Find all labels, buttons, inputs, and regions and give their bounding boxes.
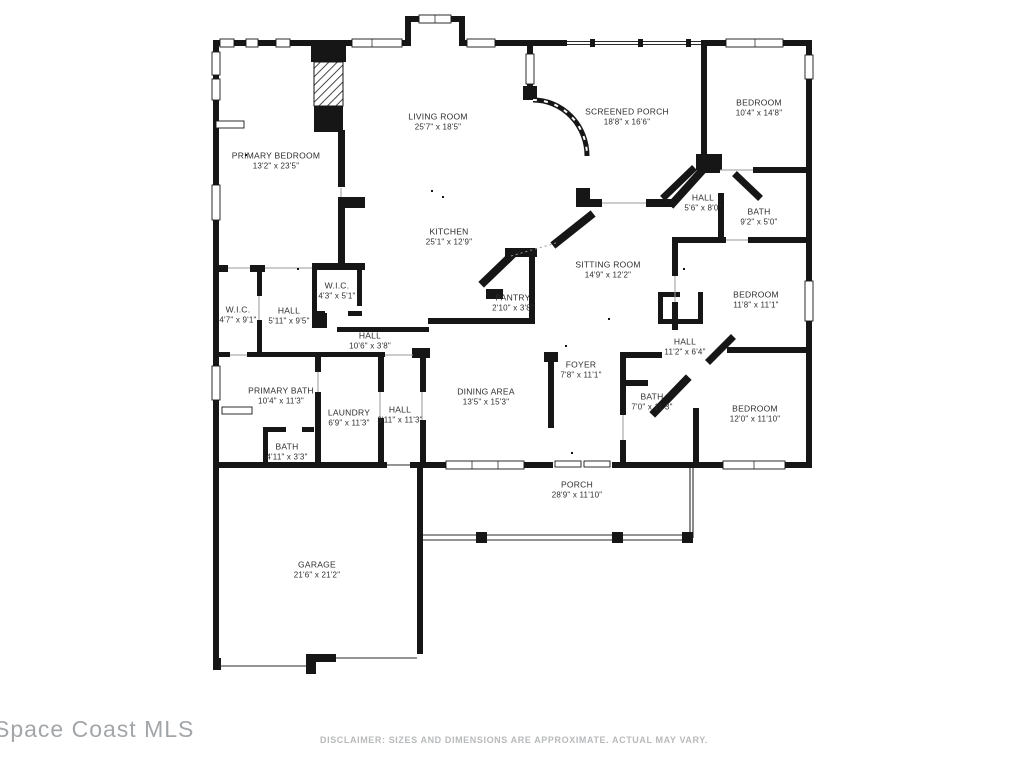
room-dims: 10'4" x 11'3": [248, 396, 314, 406]
room-dims: 13'2" x 23'5": [232, 161, 320, 171]
room-name: HALL: [389, 404, 411, 414]
room-dims: 7'8" x 11'1": [560, 370, 601, 380]
room-label-wic-1: W.I.C.4'7" x 9'1": [219, 304, 256, 325]
room-label-hall-laundry: HALL3'11" x 11'3": [377, 404, 422, 425]
room-name: KITCHEN: [429, 226, 468, 236]
room-label-bedroom-1: BEDROOM10'4" x 14'8": [736, 97, 782, 118]
room-name: BATH: [640, 391, 663, 401]
room-dims: 4'7" x 9'1": [219, 315, 256, 325]
room-dims: 11'2" x 6'4": [664, 347, 705, 357]
room-label-hall-ne: HALL5'6" x 8'0": [684, 192, 721, 213]
room-label-laundry: LAUNDRY6'9" x 11'3": [328, 407, 370, 428]
room-label-porch: PORCH28'9" x 11'10": [552, 479, 603, 500]
room-dims: 2'10" x 3'8": [492, 303, 534, 313]
room-dims: 28'9" x 11'10": [552, 490, 603, 500]
room-dims: 12'0" x 11'10": [730, 414, 781, 424]
room-label-kitchen: KITCHEN25'1" x 12'9": [426, 226, 472, 247]
room-label-sitting-room: SITTING ROOM14'9" x 12'2": [575, 259, 640, 280]
room-name: BATH: [275, 441, 298, 451]
room-name: HALL: [674, 336, 696, 346]
room-label-screened-porch: SCREENED PORCH18'8" x 16'6": [585, 106, 669, 127]
room-label-living-room: LIVING ROOM25'7" x 18'5": [408, 111, 467, 132]
room-dims: 18'8" x 16'6": [585, 117, 669, 127]
room-dims: 25'1" x 12'9": [426, 237, 472, 247]
room-dims: 5'11" x 9'5": [268, 316, 309, 326]
room-dims: 10'4" x 14'8": [736, 108, 782, 118]
room-name: PRIMARY BEDROOM: [232, 150, 320, 160]
room-label-bedroom-2: BEDROOM11'8" x 11'1": [733, 289, 779, 310]
room-dims: 7'0" x 11'3": [631, 402, 672, 412]
room-dims: 11'8" x 11'1": [733, 300, 779, 310]
mls-watermark: Space Coast MLS: [0, 716, 194, 743]
room-label-bath-small: BATH4'11" x 3'3": [266, 441, 307, 462]
room-dims: 13'5" x 15'3": [457, 397, 515, 407]
floor-plan-page: LIVING ROOM25'7" x 18'5" PRIMARY BEDROOM…: [0, 0, 1024, 768]
room-dims: 14'9" x 12'2": [575, 270, 640, 280]
disclaimer-text: DISCLAIMER: SIZES AND DIMENSIONS ARE APP…: [320, 735, 708, 745]
room-name: FOYER: [566, 359, 597, 369]
room-name: BEDROOM: [732, 403, 778, 413]
room-dims: 3'11" x 11'3": [377, 415, 422, 425]
room-label-hall-west: HALL5'11" x 9'5": [268, 305, 309, 326]
room-name: HALL: [278, 305, 300, 315]
room-name: SCREENED PORCH: [585, 106, 669, 116]
room-label-bath-center: BATH7'0" x 11'3": [631, 391, 672, 412]
room-label-hall-center: HALL10'6" x 3'8": [349, 330, 391, 351]
room-name: LAUNDRY: [328, 407, 370, 417]
room-label-dining-area: DINING AREA13'5" x 15'3": [457, 386, 515, 407]
room-label-bedroom-3: BEDROOM12'0" x 11'10": [730, 403, 781, 424]
room-dims: 25'7" x 18'5": [408, 122, 467, 132]
room-name: PRIMARY BATH: [248, 385, 314, 395]
room-dims: 10'6" x 3'8": [349, 341, 391, 351]
room-dims: 9'2" x 5'0": [740, 217, 777, 227]
room-dims: 6'9" x 11'3": [328, 418, 370, 428]
room-label-foyer: FOYER7'8" x 11'1": [560, 359, 601, 380]
room-label-primary-bath: PRIMARY BATH10'4" x 11'3": [248, 385, 314, 406]
room-dims: 21'6" x 21'2": [294, 570, 340, 580]
room-name: BEDROOM: [733, 289, 779, 299]
room-label-pantry: PANTRY2'10" x 3'8": [492, 292, 534, 313]
room-name: BEDROOM: [736, 97, 782, 107]
room-label-hall-east: HALL11'2" x 6'4": [664, 336, 705, 357]
room-dims: 4'11" x 3'3": [266, 452, 307, 462]
room-label-bath-ne: BATH9'2" x 5'0": [740, 206, 777, 227]
room-name: SITTING ROOM: [575, 259, 640, 269]
room-name: DINING AREA: [457, 386, 515, 396]
room-dims: 5'6" x 8'0": [684, 203, 721, 213]
room-name: W.I.C.: [325, 280, 350, 290]
room-dims: 4'3" x 5'1": [318, 291, 355, 301]
room-name: GARAGE: [298, 559, 336, 569]
room-label-primary-bedroom: PRIMARY BEDROOM13'2" x 23'5": [232, 150, 320, 171]
room-name: HALL: [692, 192, 714, 202]
room-name: LIVING ROOM: [408, 111, 467, 121]
room-name: BATH: [747, 206, 770, 216]
room-name: PANTRY: [495, 292, 530, 302]
room-label-wic-2: W.I.C.4'3" x 5'1": [318, 280, 355, 301]
room-name: PORCH: [561, 479, 593, 489]
room-name: W.I.C.: [226, 304, 251, 314]
room-label-garage: GARAGE21'6" x 21'2": [294, 559, 340, 580]
floor-plan-drawing: [0, 0, 1024, 768]
room-name: HALL: [359, 330, 381, 340]
